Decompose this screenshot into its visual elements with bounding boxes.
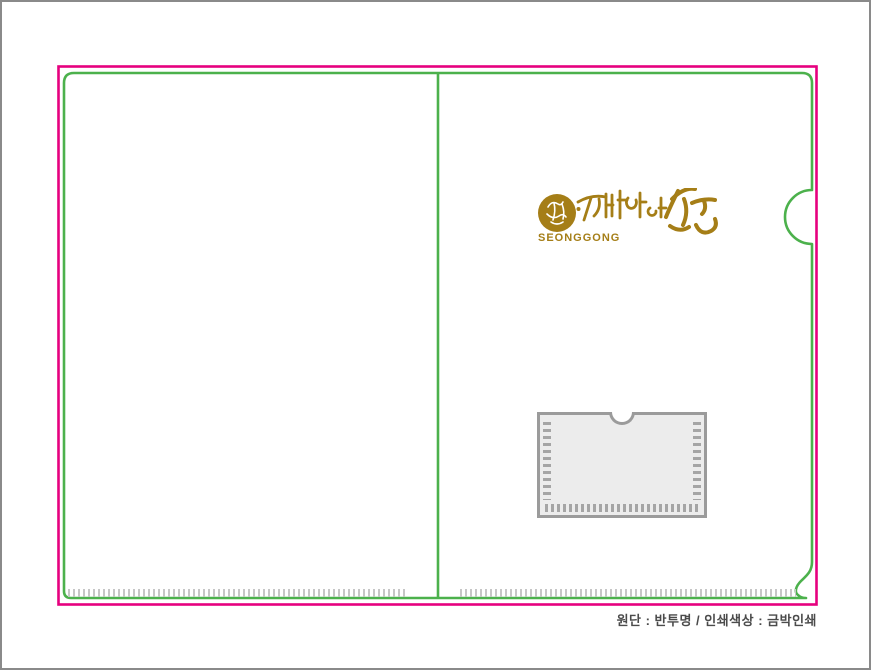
diecut-artboard: SEONGGONG 원단 : 반투명 / 인쇄색상 : 금박인쇄 bbox=[0, 0, 871, 670]
brand-wordmark: SEONGGONG bbox=[538, 232, 620, 244]
pocket-weld-right bbox=[693, 422, 701, 500]
weld-serration-right bbox=[460, 589, 796, 597]
pocket-weld-left bbox=[543, 422, 551, 500]
pocket-weld-bottom bbox=[545, 504, 699, 512]
brand-logo: SEONGGONG bbox=[532, 188, 727, 250]
seal-circle-icon bbox=[538, 194, 576, 232]
weld-serration-left bbox=[68, 589, 408, 597]
pocket-thumb-notch bbox=[609, 412, 635, 425]
seal-tail-dot bbox=[577, 207, 581, 211]
calligraphy-small-strokes bbox=[578, 191, 666, 220]
card-pocket bbox=[537, 412, 707, 518]
calligraphy-seonggong-strokes bbox=[666, 189, 716, 233]
spec-caption: 원단 : 반투명 / 인쇄색상 : 금박인쇄 bbox=[617, 610, 817, 629]
diecut-lines bbox=[2, 2, 871, 670]
